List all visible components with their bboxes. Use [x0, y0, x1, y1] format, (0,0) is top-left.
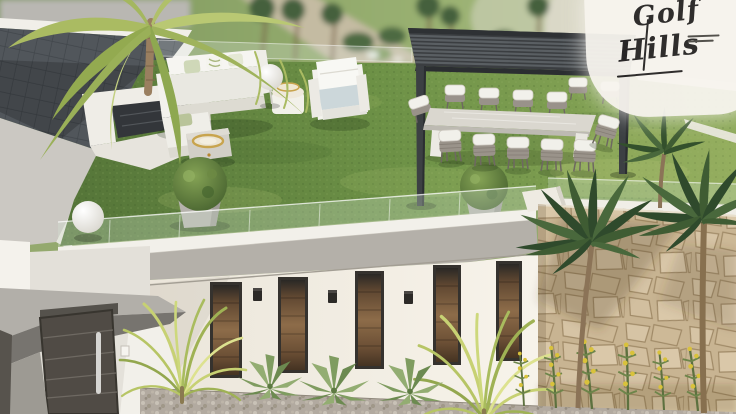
topiary-ball	[173, 157, 227, 211]
dining-chair	[505, 137, 531, 175]
window-1	[210, 282, 242, 378]
lounge-armchair	[308, 57, 370, 131]
villa-render-scene: Golf Hills	[0, 0, 736, 414]
logo-tagline-bar	[688, 40, 714, 43]
logo-badge: Golf Hills	[584, 0, 736, 119]
window-3	[355, 271, 384, 369]
logo-tagline-bar	[688, 34, 720, 37]
dining-chair	[538, 139, 565, 177]
sphere-lamp-corner	[72, 201, 104, 242]
sconce-icon	[404, 291, 413, 304]
sconce-icon	[328, 290, 337, 303]
sconce-icon	[253, 288, 262, 301]
palm-trunk	[703, 222, 705, 413]
door-handle	[96, 332, 101, 394]
dining-chair	[471, 134, 498, 172]
window-4	[433, 265, 461, 365]
doorbell	[121, 346, 129, 356]
window-2	[278, 277, 308, 373]
logo-tagline	[688, 34, 720, 42]
entrance-door	[40, 310, 118, 414]
logo-underline-flourish	[617, 70, 683, 78]
logo-word-hills: Hills	[616, 26, 701, 68]
dining-chair	[437, 129, 465, 168]
